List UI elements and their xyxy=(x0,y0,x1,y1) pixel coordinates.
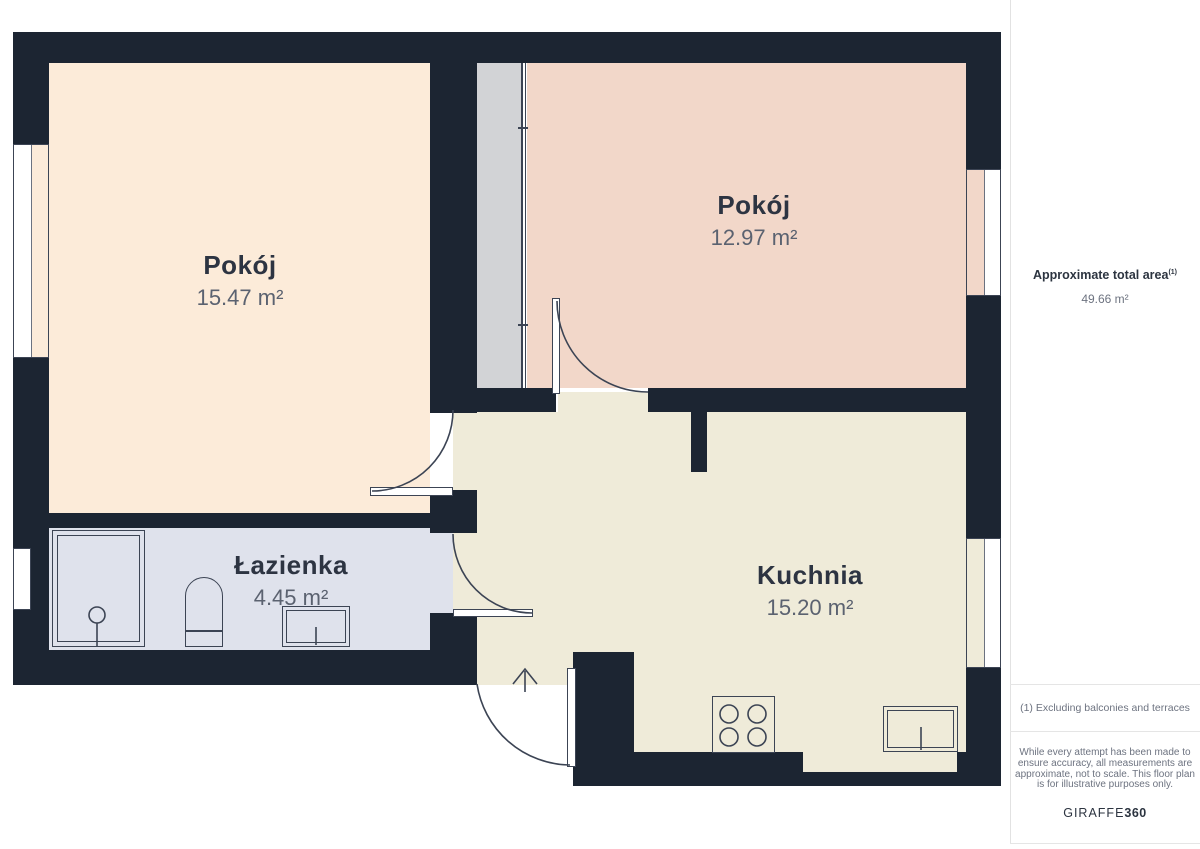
door-leaf-lazienka xyxy=(453,609,533,617)
room-pokoj2-floor xyxy=(527,63,966,388)
window-glass xyxy=(984,539,1001,667)
sidebar-divider xyxy=(1010,731,1200,732)
wall-kitchen-stub xyxy=(691,412,707,472)
wall-entry-chunk xyxy=(573,652,634,786)
window-sill xyxy=(31,145,48,357)
room-kuchnia-floor xyxy=(477,412,573,685)
window-glass xyxy=(984,170,1001,295)
door-leaf-entry xyxy=(567,668,576,767)
window-sill xyxy=(967,539,984,667)
bathroom-sink-inner xyxy=(286,610,346,643)
disclaimer-text: While every attempt has been made to ens… xyxy=(1014,748,1196,791)
sidebar-divider xyxy=(1010,684,1200,685)
pokoj1-door-opening-floor xyxy=(453,413,477,490)
kuchnia-floor-notch xyxy=(803,752,957,772)
room-kuchnia-floor xyxy=(634,412,966,752)
wardrobe-tick xyxy=(518,324,528,326)
total-area-value: 49.66 m² xyxy=(1010,292,1200,306)
footnote-text: (1) Excluding balconies and terraces xyxy=(1010,702,1200,714)
wall-mid-vertical xyxy=(430,63,477,413)
total-area-footnote-marker: (1) xyxy=(1168,269,1177,276)
window-glass xyxy=(14,549,30,609)
pokoj2-door-opening-floor xyxy=(558,392,648,412)
window-pokoj1-left xyxy=(13,144,49,358)
door-arc-entry xyxy=(477,684,570,765)
wall-pokoj2-bottom-left xyxy=(477,388,556,412)
sidebar-divider xyxy=(1010,843,1200,844)
window-pokoj2-right xyxy=(966,169,1001,296)
kitchen-sink-inner xyxy=(887,710,954,748)
wall-below-lazienka-door xyxy=(430,613,477,652)
toilet-seat-line xyxy=(186,630,222,632)
lazienka-door-opening-floor2 xyxy=(453,533,477,613)
wall-bottom-left xyxy=(13,650,477,685)
brand-name: GIRAFFE xyxy=(1063,806,1124,820)
wall-room1-lazienka xyxy=(13,513,477,528)
sidebar-border xyxy=(1010,0,1011,843)
room-kuchnia-floor xyxy=(573,412,634,652)
stove xyxy=(712,696,775,753)
total-area-label-text: Approximate total area xyxy=(1033,268,1168,282)
toilet xyxy=(185,577,223,647)
room-pokoj1-floor xyxy=(49,63,430,513)
lazienka-door-opening-floor xyxy=(430,533,453,613)
brand-suffix: 360 xyxy=(1124,806,1146,820)
shower-inner xyxy=(57,535,140,642)
window-sill xyxy=(967,170,984,295)
floorplan-page: Pokój 15.47 m² Pokój 12.97 m² Łazienka 4… xyxy=(0,0,1200,849)
wardrobe-edge-line2 xyxy=(525,63,526,388)
wardrobe-edge-line xyxy=(521,63,523,388)
wardrobe-tick xyxy=(518,127,528,129)
wall-left-upper xyxy=(13,63,49,145)
wardrobe-strip xyxy=(477,63,521,388)
total-area-label: Approximate total area(1) xyxy=(1010,268,1200,282)
giraffe360-logo: GIRAFFE360 xyxy=(1010,806,1200,820)
window-kuchnia-right xyxy=(966,538,1001,668)
door-leaf-pokoj1 xyxy=(370,487,453,496)
window-glass xyxy=(14,145,31,357)
wall-top xyxy=(13,32,1001,63)
door-leaf-pokoj2 xyxy=(552,298,560,394)
window-lazienka-left xyxy=(13,548,31,610)
wall-pokoj2-bottom-right xyxy=(648,388,966,412)
